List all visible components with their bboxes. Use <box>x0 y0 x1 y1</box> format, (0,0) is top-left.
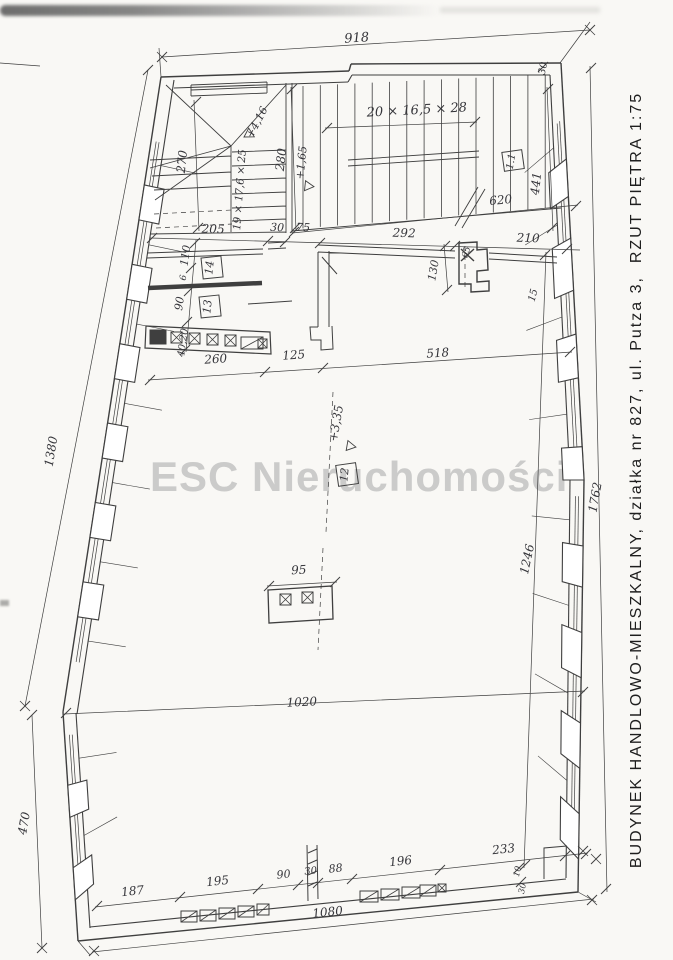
dim-bottom-1080: 1080 <box>312 903 344 920</box>
dim-mid-518: 518 <box>426 345 450 361</box>
scan-artifact-top <box>0 5 440 16</box>
room-label-14: 14 <box>202 260 216 275</box>
dim-bottom-187: 187 <box>120 883 145 899</box>
dim-left-1380: 1380 <box>42 435 61 468</box>
dim-right-1762: 1762 <box>586 481 605 514</box>
dim-step-30: 30 <box>517 882 529 895</box>
dim-left-470: 470 <box>15 810 33 836</box>
stair-main-run: 20 × 16,5 × 28 <box>365 100 467 120</box>
dimension-labels: 918 30 20 × 16,5 × 28 +4,16 270 19 × 17,… <box>15 30 605 920</box>
dim-leftcol-90: 90 <box>172 296 187 312</box>
dim-bottom-196: 196 <box>388 853 413 869</box>
dimension-ticks <box>20 25 611 956</box>
level-triangle-335 <box>346 441 357 452</box>
level-triangle-165 <box>304 181 314 192</box>
scan-artifact-top-faint <box>440 7 600 13</box>
dim-duct-130: 130 <box>425 259 441 282</box>
scan-artifact-edge <box>0 600 9 606</box>
dim-step-10: 10 <box>512 865 524 878</box>
dim-duct-65: 65 <box>461 245 474 259</box>
dim-mid-260: 260 <box>203 351 228 367</box>
stair-winder-run: 19 × 17,6 × 25 <box>231 149 249 231</box>
dim-wall-15: 15 <box>527 288 541 303</box>
dim-corridor-205: 205 <box>200 222 224 237</box>
dim-stair-280: 280 <box>273 147 289 173</box>
dim-bottom-30: 30 <box>304 865 318 877</box>
dim-hall-620: 620 <box>489 192 513 208</box>
dim-bottom-195: 195 <box>205 873 229 889</box>
dim-stair-270: 270 <box>174 149 190 175</box>
dim-bottom-233: 233 <box>490 841 516 857</box>
level-floor: +3,35 <box>326 404 346 443</box>
room-divider-wall <box>148 283 262 288</box>
room-label-13: 13 <box>200 299 214 314</box>
dashed-guides <box>154 210 465 650</box>
scanned-floor-plan-page: ESC Nieruchomości <box>0 0 673 960</box>
dim-corridor-75: 75 <box>296 221 310 234</box>
level-mid: +1,65 <box>293 145 309 180</box>
dim-span-1020: 1020 <box>286 694 318 710</box>
dim-corridor-30: 30 <box>270 221 284 234</box>
dim-mid-125: 125 <box>282 347 306 363</box>
room-label-12: 12 <box>337 467 351 482</box>
drawing-title-caption: BUDYNEK HANDLOWO-MIESZKALNY, działka nr … <box>628 92 646 868</box>
dim-leftcol-110: 110 <box>178 244 194 267</box>
dim-bottom-88: 88 <box>328 861 343 875</box>
dim-corridor-210: 210 <box>515 231 540 246</box>
dim-hall-441: 441 <box>528 171 544 196</box>
dim-bottom-90: 90 <box>276 867 291 881</box>
dim-overall-top: 918 <box>344 30 370 47</box>
dim-pillar-95: 95 <box>291 563 307 578</box>
floor-plan-drawing: 918 30 20 × 16,5 × 28 +4,16 270 19 × 17,… <box>0 0 673 960</box>
pillar-outline <box>268 586 333 623</box>
dim-corridor-292: 292 <box>391 226 415 241</box>
room-label-11: 1.1 <box>505 153 519 171</box>
level-upper: +4,16 <box>243 104 270 140</box>
dim-right-1246: 1246 <box>517 542 537 575</box>
dim-leftcol-6: 6 <box>179 274 190 281</box>
partition-linework <box>147 242 567 901</box>
